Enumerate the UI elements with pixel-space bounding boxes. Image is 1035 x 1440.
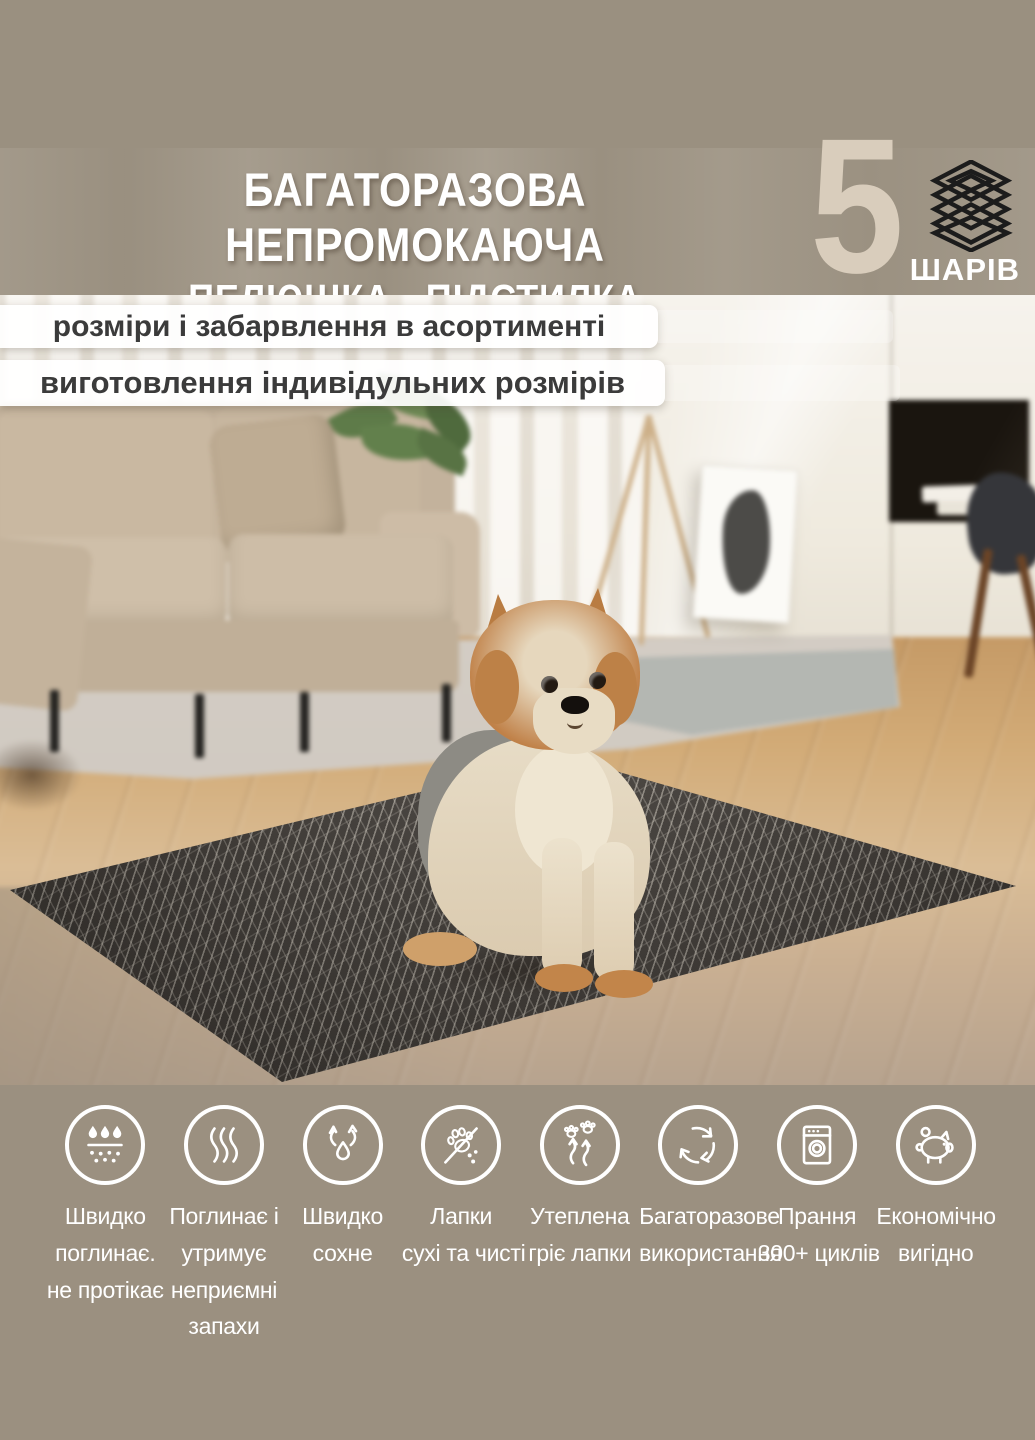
feature-reusable: Багаторазове використання [639,1105,758,1440]
reusable-cycle-icon [658,1105,738,1185]
feature-caption: Прання 300+ циклів [758,1198,877,1272]
dog-front-leg [542,838,582,978]
sofa-leg [50,690,59,752]
feature-caption: Швидко поглинає. не протікає [46,1198,165,1308]
feature-caption: Швидко сохне [283,1198,402,1272]
dog-nose [561,696,589,714]
assortment-ribbon: розміри і забарвлення в асортименті [0,305,658,348]
dog-eye [541,676,558,693]
custom-sizes-ribbon: виготовлення індивідульних розмірів [0,360,665,406]
feature-economy: Економічно вигідно [876,1105,995,1440]
layers-badge: 5 ШАРІВ [810,144,1028,296]
stacked-layers-icon [920,160,1022,252]
feature-warm: Утеплена гріє лапки [521,1105,640,1440]
dog-eye [589,672,606,689]
feature-clean-paws: Лапки сухі та чисті [402,1105,521,1440]
feature-washing: Прання 300+ циклів [758,1105,877,1440]
feature-caption: Лапки сухі та чисті [402,1198,521,1272]
title-banner: БАГАТОРАЗОВА НЕПРОМОКАЮЧА ПЕЛЮШКА - ПІДС… [0,148,1035,295]
feature-dry: Швидко сохне [283,1105,402,1440]
dog-paw [595,970,653,998]
layers-label: ШАРІВ [910,252,1020,288]
dog-rear-paw [403,932,477,966]
warm-paws-icon [540,1105,620,1185]
dog-front-leg [594,842,634,982]
feature-caption: Утеплена гріє лапки [521,1198,640,1272]
product-photo [0,295,1035,1085]
wall-art-poster [692,464,798,624]
features-row: Швидко поглинає. не протікає Поглинає і … [0,1085,1035,1440]
dog [395,592,665,1017]
feature-caption: Багаторазове використання [639,1198,758,1272]
absorb-drops-icon [65,1105,145,1185]
ribbon-text: розміри і забарвлення в асортименті [53,310,606,344]
feature-caption: Економічно вигідно [876,1198,995,1272]
odor-lock-icon [184,1105,264,1185]
washing-machine-icon [777,1105,857,1185]
clean-paws-icon [421,1105,501,1185]
title-line-1: БАГАТОРАЗОВА НЕПРОМОКАЮЧА [50,162,780,273]
dog-paw [535,964,593,992]
feature-caption: Поглинає і утримує неприємні запахи [165,1198,284,1345]
feature-odor: Поглинає і утримує неприємні запахи [165,1105,284,1440]
dog-mouth [567,716,583,729]
dog-cheek [475,650,519,724]
quick-dry-icon [303,1105,383,1185]
sofa-leg [300,692,309,752]
sofa-leg [195,694,204,758]
ribbon-text: виготовлення індивідульних розмірів [40,365,625,401]
piggy-bank-icon [896,1105,976,1185]
layers-count: 5 [810,110,904,302]
product-infographic: БАГАТОРАЗОВА НЕПРОМОКАЮЧА ПЕЛЮШКА - ПІДС… [0,0,1035,1440]
poster-artwork [719,489,773,596]
feature-absorb: Швидко поглинає. не протікає [46,1105,165,1440]
